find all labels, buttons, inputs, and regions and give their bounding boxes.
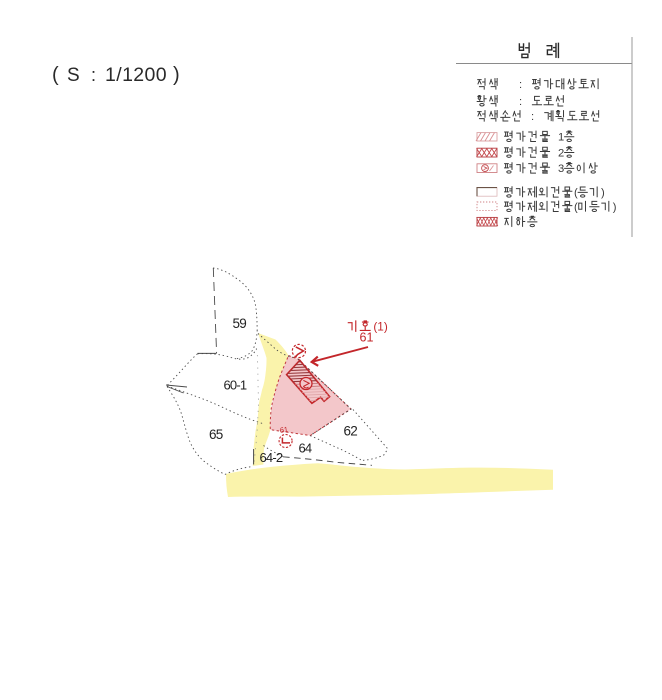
svg-text:(: ( [574,202,578,214]
svg-text:62: 62 [344,424,358,439]
svg-text::: : [531,111,534,123]
svg-text:59: 59 [233,316,247,331]
svg-text:): ) [613,202,617,214]
svg-text:65: 65 [209,427,223,442]
svg-text:2: 2 [558,147,564,159]
svg-text:(: ( [52,64,59,86]
svg-text:1: 1 [558,132,564,144]
svg-text:б1: б1 [279,425,289,435]
svg-text:1/1200: 1/1200 [105,64,167,86]
svg-text::: : [519,79,522,91]
svg-text:(1): (1) [373,319,387,333]
svg-text:3: 3 [558,163,564,175]
svg-text:S: S [67,65,80,86]
svg-text:): ) [173,64,180,86]
svg-text:(: ( [574,187,578,199]
svg-text::: : [91,65,96,85]
svg-text:61: 61 [360,331,374,345]
svg-text:64-2: 64-2 [260,450,283,465]
svg-text:): ) [601,187,605,199]
svg-text:64: 64 [299,441,312,456]
svg-text:60-1: 60-1 [224,378,247,393]
svg-text::: : [519,96,522,108]
